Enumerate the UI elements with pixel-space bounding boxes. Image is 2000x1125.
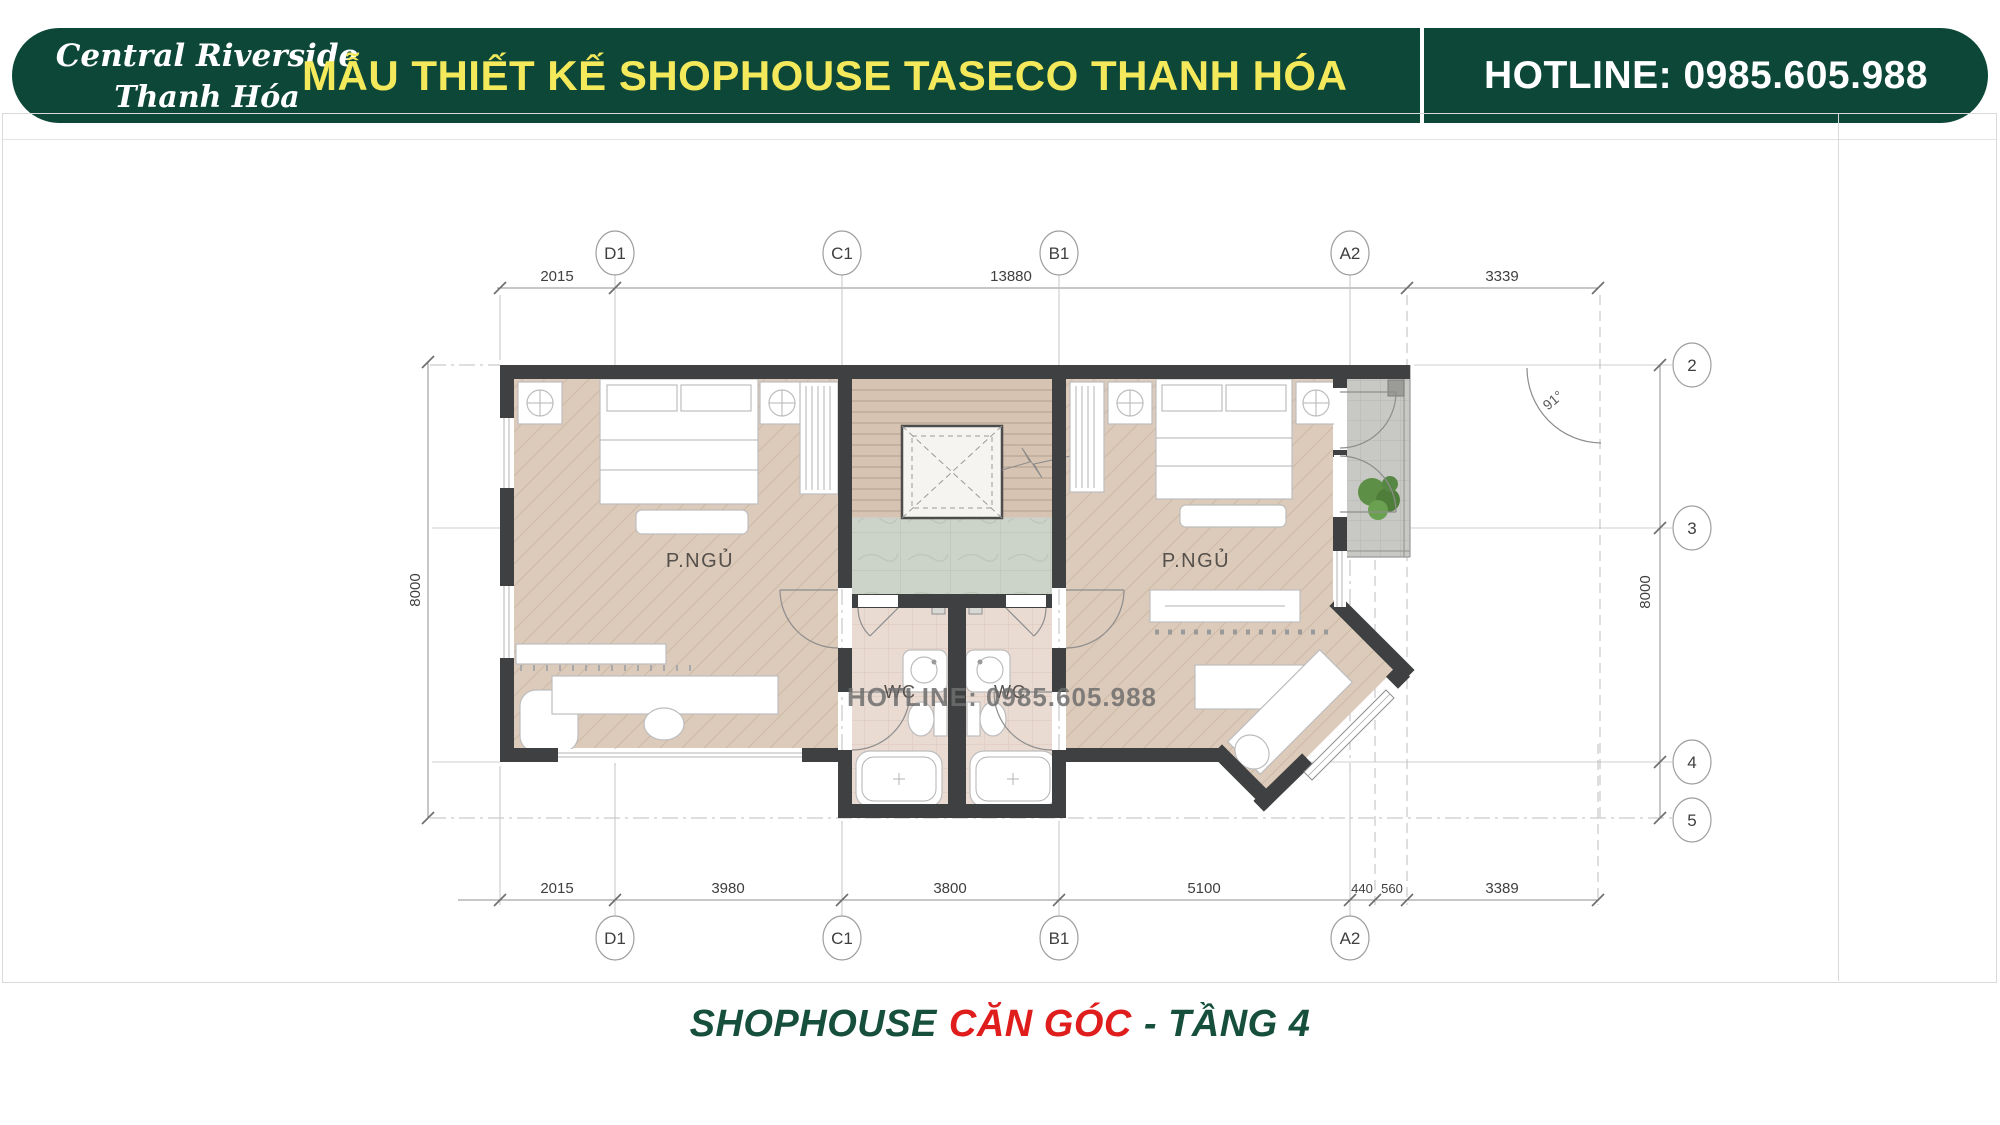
- bubble-top-B1: B1: [1049, 244, 1070, 263]
- dim-left-8000: 8000: [407, 573, 424, 606]
- dim-bot-3980: 3980: [711, 880, 744, 897]
- label-bedroom-right: P.NGỦ: [1162, 548, 1230, 572]
- bathtub-right: [970, 751, 1056, 807]
- dim-top-13880: 13880: [990, 268, 1032, 285]
- window-left-1: [501, 418, 513, 488]
- angle-label: 91°: [1540, 387, 1567, 413]
- window-right: [1334, 551, 1346, 607]
- bathtub-left: [856, 751, 942, 807]
- dim-bot-3389: 3389: [1485, 880, 1518, 897]
- caption-shophouse: SHOPHOUSE: [690, 1003, 937, 1045]
- dim-bot-440: 440: [1351, 881, 1373, 896]
- dim-bot-560: 560: [1381, 881, 1403, 896]
- bubble-top-D1: D1: [604, 244, 626, 263]
- label-bedroom-left: P.NGỦ: [666, 548, 734, 572]
- wardrobe-right: [1070, 382, 1104, 492]
- bubble-right-5: 5: [1687, 811, 1696, 830]
- caption-tang-4: - TẦNG 4: [1144, 1003, 1311, 1045]
- dim-right-8000: 8000: [1637, 575, 1654, 608]
- bubble-right-4: 4: [1687, 753, 1696, 772]
- watermark-hotline: HOTLINE: 0985.605.988: [847, 682, 1157, 712]
- bubble-bot-C1: C1: [831, 929, 853, 948]
- window-left-2: [501, 586, 513, 658]
- dim-bot-3800: 3800: [933, 880, 966, 897]
- bubble-bot-A2: A2: [1340, 929, 1361, 948]
- dim-bot-2015: 2015: [540, 880, 573, 897]
- bubble-top-A2: A2: [1340, 244, 1361, 263]
- bubble-right-3: 3: [1687, 519, 1696, 538]
- plan-caption: SHOPHOUSECĂN GÓC- TẦNG 4: [0, 1003, 2000, 1046]
- wardrobe-left: [800, 382, 838, 494]
- bubble-bot-B1: B1: [1049, 929, 1070, 948]
- bubble-top-C1: C1: [831, 244, 853, 263]
- chair-left: [644, 708, 684, 740]
- window-bottom: [558, 749, 802, 761]
- floorplan-drawing: 2015 13880 3339 2015 3980 3800 5100 440 …: [0, 0, 2000, 1125]
- bubble-right-2: 2: [1687, 356, 1696, 375]
- bubble-bot-D1: D1: [604, 929, 626, 948]
- dim-bot-5100: 5100: [1187, 880, 1220, 897]
- dim-top-2015: 2015: [540, 268, 573, 285]
- caption-can-goc: CĂN GÓC: [949, 1003, 1132, 1045]
- dim-top-3339: 3339: [1485, 268, 1518, 285]
